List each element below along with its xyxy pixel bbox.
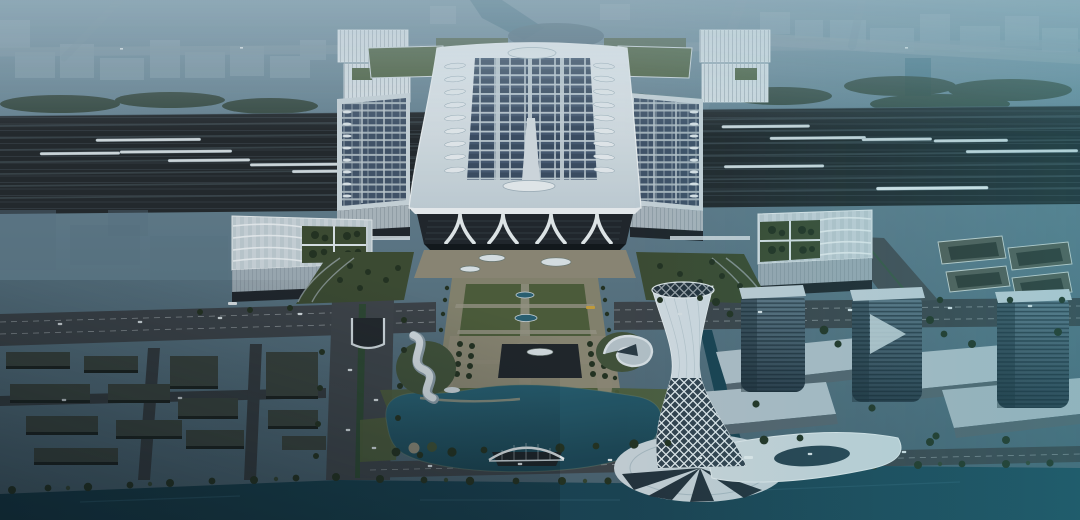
aerial-rendering [0, 0, 1080, 520]
global-cool-tint [0, 0, 1080, 520]
rendering-canvas [0, 0, 1080, 520]
